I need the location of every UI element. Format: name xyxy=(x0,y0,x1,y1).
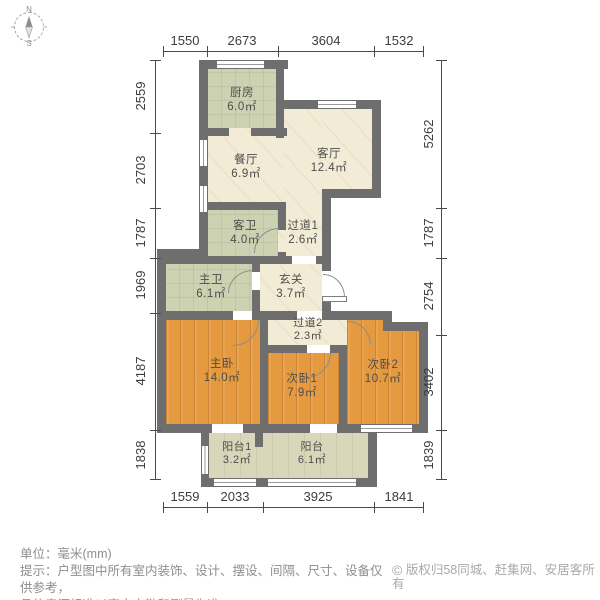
room-area: 3.2㎡ xyxy=(202,454,272,467)
dimension-line-top xyxy=(163,51,424,52)
dimension-tick xyxy=(150,258,161,259)
window xyxy=(318,100,356,109)
dimension-line-right xyxy=(441,60,442,480)
copyright-line: © 版权归58同城、赶集网、安居客所有 xyxy=(392,563,600,591)
room-label-balcony: 阳台 6.1㎡ xyxy=(277,441,347,467)
room-label-living: 客厅 12.4㎡ xyxy=(294,147,364,175)
window xyxy=(217,60,264,69)
dim-right-5: 1839 xyxy=(421,420,437,490)
copyright-text: 版权归58同城、赶集网、安居客所有 xyxy=(392,563,595,591)
dim-bottom-1: 1559 xyxy=(163,489,207,505)
room-area: 2.3㎡ xyxy=(273,330,343,343)
wall xyxy=(276,60,284,138)
wall xyxy=(160,256,292,264)
dimension-tick xyxy=(423,502,424,513)
compass-north-label: N xyxy=(10,6,48,14)
room-label-master-bath: 主卫 6.1㎡ xyxy=(176,273,246,301)
dim-bottom-3: 3925 xyxy=(270,489,366,505)
room-area: 10.7㎡ xyxy=(348,372,418,386)
wall xyxy=(368,433,377,487)
compass: N S xyxy=(10,8,48,46)
dimension-tick xyxy=(150,313,161,314)
dimension-tick xyxy=(436,335,447,336)
window xyxy=(361,424,412,433)
room-area: 7.9㎡ xyxy=(267,386,337,400)
dimension-tick xyxy=(436,258,447,259)
window xyxy=(199,140,208,166)
room-area: 6.1㎡ xyxy=(176,287,246,301)
room-label-master-bedroom: 主卧 14.0㎡ xyxy=(187,357,257,385)
room-name: 主卧 xyxy=(187,357,257,371)
wall xyxy=(372,100,381,196)
wall xyxy=(345,424,361,433)
dim-right-3: 2754 xyxy=(421,261,437,331)
room-name: 主卫 xyxy=(176,273,246,287)
wall xyxy=(199,128,229,136)
dim-left-6: 1838 xyxy=(133,420,149,490)
wall xyxy=(339,345,347,424)
dimension-tick xyxy=(436,60,447,61)
room-name: 次卧1 xyxy=(267,372,337,386)
room-name: 厨房 xyxy=(207,86,277,100)
dim-top-2: 2673 xyxy=(205,33,279,49)
room-name: 阳台 xyxy=(277,441,347,454)
dimension-tick xyxy=(436,479,447,480)
room-area: 14.0㎡ xyxy=(187,371,257,385)
dim-top-3: 3604 xyxy=(281,33,371,49)
room-label-dining: 餐厅 6.9㎡ xyxy=(211,153,281,181)
room-label-corridor2: 过道2 2.3㎡ xyxy=(273,317,343,343)
window xyxy=(268,478,356,487)
dim-right-1: 5262 xyxy=(421,99,437,169)
room-label-balcony1: 阳台1 3.2㎡ xyxy=(202,441,272,467)
dimension-tick xyxy=(263,502,264,513)
wall xyxy=(267,345,307,353)
room-name: 玄关 xyxy=(256,273,326,287)
dimension-line-bottom xyxy=(163,507,424,508)
room-label-bedroom2: 次卧1 7.9㎡ xyxy=(267,372,337,400)
dimension-tick xyxy=(150,208,161,209)
room-name: 次卧2 xyxy=(348,358,418,372)
dim-left-4: 1969 xyxy=(133,250,149,320)
room-name: 过道1 xyxy=(268,219,338,233)
dim-left-5: 4187 xyxy=(133,336,149,406)
room-label-entry: 玄关 3.7㎡ xyxy=(256,273,326,301)
wall xyxy=(330,345,339,353)
dim-right-2: 1787 xyxy=(421,198,437,268)
floorplan-canvas: N S xyxy=(0,0,600,600)
wall xyxy=(157,256,166,433)
dimension-tick xyxy=(150,430,161,431)
dimension-line-left xyxy=(155,60,156,480)
dimension-tick xyxy=(423,46,424,57)
window xyxy=(214,478,256,487)
wall xyxy=(243,424,310,433)
dim-right-4: 3402 xyxy=(421,347,437,417)
room-name: 过道2 xyxy=(273,317,343,330)
dim-bottom-4: 1841 xyxy=(375,489,423,505)
footer-tip-line1: 提示：户型图中所有室内装饰、设计、摆设、间隔、尺寸、设备仅供参考， xyxy=(20,563,390,597)
room-label-bedroom3: 次卧2 10.7㎡ xyxy=(348,358,418,386)
dimension-tick xyxy=(150,133,161,134)
wall xyxy=(208,202,286,210)
room-name: 餐厅 xyxy=(211,153,281,167)
wall xyxy=(251,128,287,136)
dim-left-1: 2559 xyxy=(133,61,149,131)
copyright-icon: © xyxy=(392,562,402,578)
room-area: 6.1㎡ xyxy=(277,454,347,467)
footer-disclaimer: 单位：毫米(mm) 提示：户型图中所有室内装饰、设计、摆设、间隔、尺寸、设备仅供… xyxy=(20,546,390,600)
dimension-tick xyxy=(150,479,161,480)
dim-top-1: 1550 xyxy=(163,33,207,49)
dimension-tick xyxy=(150,60,161,61)
dimension-tick xyxy=(436,208,447,209)
compass-south-label: S xyxy=(10,40,48,48)
window xyxy=(199,186,208,212)
wall xyxy=(157,311,233,320)
dim-top-4: 1532 xyxy=(375,33,423,49)
dimension-tick xyxy=(436,430,447,431)
room-label-kitchen: 厨房 6.0㎡ xyxy=(207,86,277,114)
dim-bottom-2: 2033 xyxy=(207,489,263,505)
room-area: 2.6㎡ xyxy=(268,233,338,247)
room-area: 6.9㎡ xyxy=(211,167,281,181)
room-name: 客厅 xyxy=(294,147,364,161)
room-area: 6.0㎡ xyxy=(207,100,277,114)
room-area: 3.7㎡ xyxy=(256,287,326,301)
footer-unit-line: 单位：毫米(mm) xyxy=(20,546,390,563)
room-name: 阳台1 xyxy=(202,441,272,454)
room-area: 12.4㎡ xyxy=(294,161,364,175)
entry-door-swing-arc xyxy=(323,274,345,297)
dim-left-2: 2703 xyxy=(133,135,149,205)
room-label-corridor1: 过道1 2.6㎡ xyxy=(268,219,338,247)
wall xyxy=(157,424,212,433)
wall xyxy=(316,256,331,264)
wall xyxy=(252,264,260,272)
